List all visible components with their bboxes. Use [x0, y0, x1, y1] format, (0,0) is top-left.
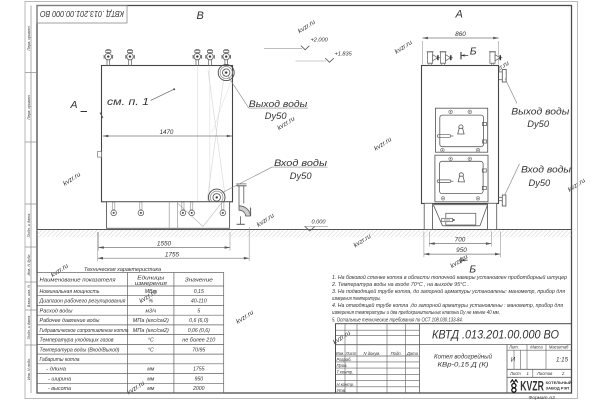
- svg-text:см. п. 1: см. п. 1: [107, 97, 149, 108]
- svg-text:Т.контр.: Т.контр.: [337, 369, 354, 374]
- svg-text:Формат А3: Формат А3: [529, 395, 556, 400]
- svg-text:Диапазон рабочего регулировани: Диапазон рабочего регулирования: [38, 299, 125, 305]
- svg-text:мм: мм: [147, 377, 155, 383]
- svg-text:Вход воды: Вход воды: [274, 158, 327, 168]
- svg-text:Лист: Лист: [345, 351, 357, 356]
- svg-text:kvzr.ru: kvzr.ru: [373, 136, 393, 153]
- svg-text:1:15: 1:15: [556, 357, 569, 364]
- svg-text:kvzr.ru: kvzr.ru: [449, 253, 469, 270]
- svg-text:Рабочее давление воды: Рабочее давление воды: [40, 318, 100, 324]
- svg-text:не более 210: не более 210: [182, 338, 215, 344]
- svg-text:1550: 1550: [157, 240, 172, 247]
- svg-text:Номинальная мощность: Номинальная мощность: [40, 289, 100, 295]
- svg-text:измерения температуры и два пр: измерения температуры и два предохраните…: [332, 310, 500, 316]
- svg-text:мм: мм: [147, 386, 155, 392]
- svg-text:Dy50: Dy50: [527, 119, 550, 129]
- svg-text:Гидравлическое сопротивление к: Гидравлическое сопротивление котла: [40, 328, 129, 334]
- svg-text:ЗАВОД РЭП: ЗАВОД РЭП: [546, 386, 570, 391]
- svg-text:КОТЕЛЬНЫЙ: КОТЕЛЬНЫЙ: [546, 380, 572, 385]
- svg-text:Dy50: Dy50: [265, 111, 288, 121]
- svg-text:40-110: 40-110: [191, 299, 207, 305]
- svg-text:А: А: [455, 9, 463, 21]
- svg-text:Подп.: Подп.: [391, 351, 402, 356]
- svg-text:Листов: Листов: [536, 371, 553, 376]
- svg-text:700: 700: [455, 236, 466, 243]
- svg-text:5: 5: [197, 308, 200, 314]
- svg-text:Подп. и дата: Подп. и дата: [27, 214, 31, 238]
- svg-text:КВТД .013.201.00.000 ВО: КВТД .013.201.00.000 ВО: [432, 328, 559, 342]
- svg-text:Подп. и дата: Подп. и дата: [27, 316, 31, 340]
- svg-text:мм: мм: [147, 367, 155, 373]
- svg-text:Dy50: Dy50: [290, 171, 313, 181]
- svg-text:Лист: Лист: [509, 371, 521, 376]
- svg-text:Наименование показателя: Наименование показателя: [40, 277, 116, 283]
- svg-text:4. На отводящей трубе котла ,: 4. На отводящей трубе котла ,до запорной…: [332, 302, 563, 309]
- svg-text:Изм.: Изм.: [336, 351, 345, 356]
- svg-text:+1.835: +1.835: [335, 51, 353, 57]
- svg-text:Расход воды: Расход воды: [40, 308, 73, 314]
- svg-text:kvzr.ru: kvzr.ru: [256, 212, 276, 229]
- svg-text:kvzr.ru: kvzr.ru: [297, 18, 317, 35]
- svg-text:kvzr.ru: kvzr.ru: [126, 380, 146, 397]
- svg-text:0,06 (0,6): 0,06 (0,6): [188, 328, 210, 334]
- svg-text:Масса: Масса: [530, 345, 543, 350]
- svg-text:МПа (кгс/см2): МПа (кгс/см2): [133, 318, 169, 324]
- svg-text:0.000: 0.000: [312, 219, 327, 225]
- svg-text:2000: 2000: [192, 386, 205, 392]
- svg-text:1: 1: [527, 371, 529, 376]
- svg-text:КВр-0,15 Д (К): КВр-0,15 Д (К): [438, 361, 489, 368]
- svg-text:Выход воды: Выход воды: [249, 99, 308, 109]
- svg-text:- высота: - высота: [48, 386, 71, 392]
- svg-text:0,6 (6,0): 0,6 (6,0): [189, 318, 209, 324]
- svg-text:°С: °С: [148, 347, 154, 353]
- svg-text:Габариты котла: Габариты котла: [40, 357, 80, 363]
- svg-text:Разраб.: Разраб.: [337, 357, 352, 362]
- svg-text:Инв. N дубл.: Инв. N дубл.: [27, 254, 31, 276]
- svg-text:м3/ч: м3/ч: [146, 308, 157, 314]
- svg-text:А: А: [70, 99, 78, 111]
- svg-text:N докум.: N докум.: [364, 351, 381, 356]
- svg-text:Dy50: Dy50: [529, 178, 552, 188]
- svg-text:измерения: измерения: [135, 281, 167, 287]
- svg-text:kvzr.ru: kvzr.ru: [567, 177, 587, 194]
- svg-text:°С: °С: [148, 338, 154, 344]
- svg-text:1755: 1755: [193, 367, 205, 373]
- svg-text:1470: 1470: [160, 129, 174, 136]
- svg-text:kvzr.ru: kvzr.ru: [62, 171, 82, 188]
- svg-text:KVZR: KVZR: [520, 379, 544, 394]
- svg-text:Выход воды: Выход воды: [511, 107, 569, 117]
- svg-text:Вход воды: Вход воды: [521, 164, 571, 174]
- svg-text:Температура воды (Вход/Выход): Температура воды (Вход/Выход): [40, 347, 120, 353]
- svg-text:950: 950: [456, 247, 467, 254]
- svg-text:Масштаб: Масштаб: [549, 345, 569, 350]
- svg-text:Утв.: Утв.: [337, 388, 347, 393]
- svg-text:Лит.: Лит.: [508, 345, 519, 350]
- svg-text:kvzr.ru: kvzr.ru: [394, 39, 414, 56]
- svg-text:2: 2: [561, 371, 565, 376]
- svg-text:kvzr.ru: kvzr.ru: [235, 309, 255, 326]
- svg-text:Техническая характеристика: Техническая характеристика: [84, 267, 161, 273]
- svg-text:МПа (кгс/см2): МПа (кгс/см2): [133, 328, 169, 334]
- svg-text:КВТД .013.201.00.000 ВО: КВТД .013.201.00.000 ВО: [40, 9, 124, 18]
- svg-text:Н.контр.: Н.контр.: [337, 382, 355, 387]
- svg-text:0,15: 0,15: [194, 289, 204, 295]
- svg-text:%: %: [148, 299, 153, 305]
- svg-text:В: В: [197, 10, 204, 22]
- svg-text:Инв. N подл.: Инв. N подл.: [27, 358, 31, 380]
- svg-text:Котел водогрейный: Котел водогрейный: [434, 353, 492, 361]
- svg-text:МВт: МВт: [145, 289, 158, 295]
- svg-text:860: 860: [455, 31, 466, 38]
- svg-text:kvzr.ru: kvzr.ru: [332, 330, 352, 347]
- svg-text:Температура уходящих газов: Температура уходящих газов: [40, 338, 114, 344]
- svg-text:2. Температура воды на входе: 2. Температура воды на входе 70°С , на в…: [331, 282, 469, 288]
- svg-text:1. На боковой стенке котла в: 1. На боковой стенке котла в области топ…: [332, 274, 567, 281]
- svg-text:- длина: - длина: [46, 367, 66, 373]
- svg-text:Б: Б: [470, 46, 477, 58]
- svg-text:Перв. примен.: Перв. примен.: [27, 94, 31, 119]
- svg-text:950: 950: [194, 377, 203, 383]
- svg-text:Дата: Дата: [406, 351, 419, 356]
- svg-text:Перв. примен.: Перв. примен.: [27, 25, 31, 50]
- svg-text:измерения температуры.: измерения температуры.: [332, 296, 381, 302]
- svg-text:Взам. инв. N: Взам. инв. N: [27, 285, 31, 307]
- svg-text:Значение: Значение: [185, 277, 213, 283]
- svg-text:70/95: 70/95: [192, 347, 205, 353]
- svg-text:1755: 1755: [165, 251, 180, 258]
- svg-text:3. На подводящей трубе котла,: 3. На подводящей трубе котла, до запорно…: [332, 288, 565, 295]
- svg-text:- ширина: - ширина: [48, 377, 71, 383]
- svg-text:5. Остальные технические треб: 5. Остальные технические требования по О…: [332, 317, 463, 323]
- svg-text:И: И: [511, 357, 516, 364]
- svg-text:Б: Б: [469, 263, 476, 275]
- svg-text:Пров.: Пров.: [337, 363, 348, 368]
- svg-text:+2.000: +2.000: [311, 38, 329, 44]
